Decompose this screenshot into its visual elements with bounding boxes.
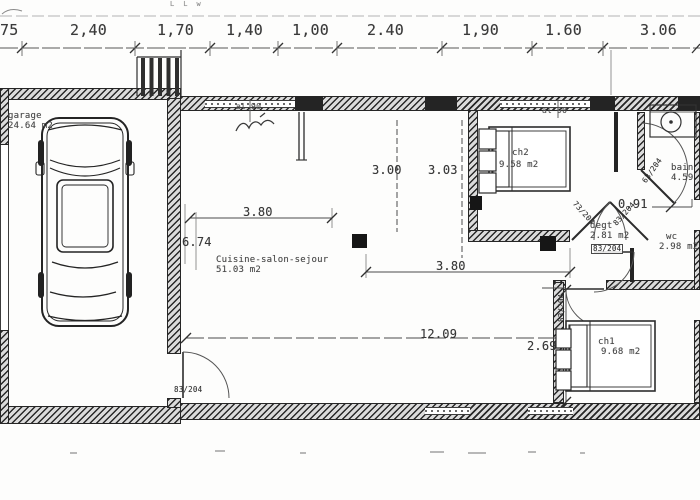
handwriting-annotation — [236, 113, 274, 131]
room-ch2-area: 9.58 m2 — [499, 160, 538, 170]
scan-speck — [580, 452, 585, 454]
room-living-area: 51.03 m2 — [216, 265, 261, 275]
door-label-wc: 83/204 — [591, 244, 623, 254]
scan-speck — [468, 452, 486, 454]
dim-top-8: 3.06 — [640, 22, 677, 39]
scan-speck — [300, 452, 306, 454]
stairs-icon — [137, 50, 181, 96]
dim-width-total: 12.09 — [420, 328, 457, 341]
room-living-name: Cuisine-salon-sejour — [216, 255, 328, 265]
room-garage-name: garage — [8, 111, 42, 121]
dim-kitchen-width: 3.80 — [243, 206, 273, 219]
scan-speck — [430, 451, 444, 453]
dim-top-3: 1,40 — [226, 22, 263, 39]
sill-annotation-right: al 90 — [542, 107, 567, 116]
dim-top-2: 1,70 — [157, 22, 194, 39]
sill-tick — [250, 99, 558, 122]
dim-top-7: 1.60 — [545, 22, 582, 39]
dim-height-total: 6.74 — [182, 236, 212, 249]
room-ch1-name: ch1 — [598, 337, 615, 347]
kitchen-partition — [296, 112, 307, 160]
sill-annotation-left: al 90 — [236, 103, 261, 112]
room-ch2-name: ch2 — [512, 148, 529, 158]
top-scan-marks: L L w — [170, 1, 201, 9]
car-icon — [36, 118, 134, 326]
room-wc-name: wc — [666, 232, 677, 242]
scan-speck — [528, 451, 536, 453]
floor-plan: 75 2,40 1,70 1,40 1,00 2.40 1,90 1.60 3.… — [0, 0, 700, 500]
room-garage-area: 24.64 m2 — [8, 121, 53, 131]
room-degt-area: 2.81 m2 — [590, 231, 629, 241]
room-wc-area: 2.98 m2 — [659, 242, 698, 252]
washbasin-icon — [650, 105, 696, 137]
dim-living-width: 3.80 — [436, 260, 466, 273]
dim-top-5: 2.40 — [367, 22, 404, 39]
room-bain-name: bain — [671, 163, 693, 173]
scan-speck — [70, 452, 77, 454]
door-label-ch1: 83/204 — [558, 294, 566, 322]
dim-living-height-b: 3.03 — [428, 164, 458, 177]
dim-top-4: 1,00 — [292, 22, 329, 39]
door-label-living: 83/204 — [174, 386, 202, 394]
dim-living-height-a: 3.00 — [372, 164, 402, 177]
dim-top-6: 1,90 — [462, 22, 499, 39]
room-bain-area: 4.59 m2 — [671, 173, 700, 183]
dim-top-1: 2,40 — [70, 22, 107, 39]
dim-ch1-height: 2.69 — [527, 340, 557, 353]
room-ch1-area: 9.68 m2 — [601, 347, 640, 357]
scan-speck — [215, 450, 225, 452]
dim-top-0: 75 — [0, 22, 18, 39]
